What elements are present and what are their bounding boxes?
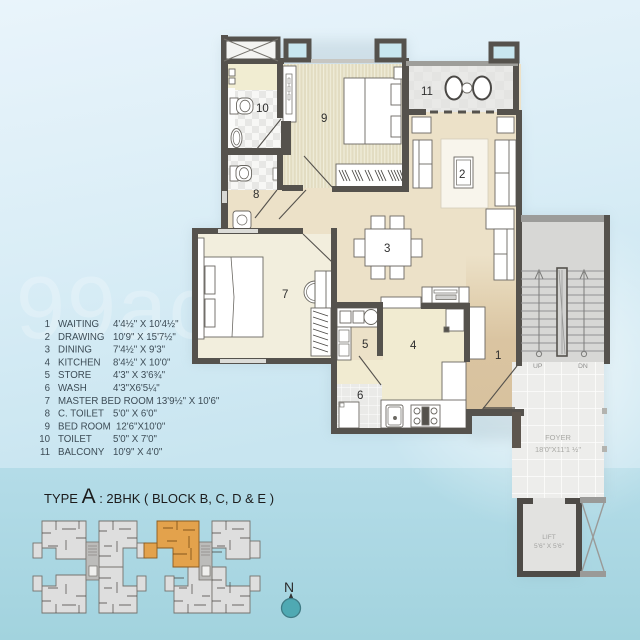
svg-text:1: 1: [495, 350, 501, 362]
svg-text:DRAWING: DRAWING: [58, 332, 104, 343]
svg-text:3: 3: [45, 345, 50, 356]
svg-text:MASTER BED ROOM 13'9½" X 10'6": MASTER BED ROOM 13'9½" X 10'6": [58, 396, 220, 407]
svg-text:12'6"X10'0": 12'6"X10'0": [116, 421, 166, 432]
svg-text:7'4½" X 9'3": 7'4½" X 9'3": [113, 345, 166, 356]
svg-text:7: 7: [282, 289, 288, 301]
svg-text:6: 6: [357, 390, 363, 402]
svg-text:8: 8: [253, 189, 259, 201]
svg-text:5'0" X 7'0": 5'0" X 7'0": [113, 434, 158, 445]
svg-text:DN: DN: [578, 363, 588, 370]
svg-text:1: 1: [45, 319, 50, 330]
svg-text:WAITING: WAITING: [58, 319, 99, 330]
svg-text:5'6" X 5'6": 5'6" X 5'6": [534, 543, 565, 550]
svg-text:3: 3: [384, 243, 390, 255]
svg-text:10: 10: [39, 434, 50, 445]
svg-text:8'4½" X 10'0": 8'4½" X 10'0": [113, 357, 171, 368]
svg-text:TOILET: TOILET: [58, 434, 92, 445]
svg-text:8: 8: [45, 409, 50, 420]
svg-text:BALCONY: BALCONY: [58, 447, 105, 458]
svg-text:5'0" X 6'0": 5'0" X 6'0": [113, 409, 158, 420]
svg-text:9: 9: [45, 421, 50, 432]
svg-text:KITCHEN: KITCHEN: [58, 357, 101, 368]
svg-text:C. TOILET: C. TOILET: [58, 409, 104, 420]
svg-text:4: 4: [45, 357, 51, 368]
svg-text:5: 5: [45, 370, 50, 381]
svg-text:11: 11: [421, 86, 433, 98]
svg-text:9: 9: [321, 113, 327, 125]
svg-text:LIFT: LIFT: [542, 534, 556, 541]
svg-text:4'4½" X 10'4½": 4'4½" X 10'4½": [113, 319, 179, 330]
svg-text:BED ROOM: BED ROOM: [58, 421, 111, 432]
svg-text:UP: UP: [533, 363, 543, 370]
svg-text:7: 7: [45, 396, 50, 407]
svg-text:4'3" X 3'6¾": 4'3" X 3'6¾": [113, 370, 166, 381]
svg-text:11: 11: [40, 447, 50, 458]
svg-text:10'9" X 4'0": 10'9" X 4'0": [113, 447, 163, 458]
svg-text:18'0"X11'1 ½": 18'0"X11'1 ½": [535, 445, 581, 454]
svg-text:4: 4: [410, 340, 417, 352]
svg-text:5: 5: [362, 339, 368, 351]
svg-text:10'9" X 15'7½": 10'9" X 15'7½": [113, 332, 176, 343]
svg-text:2: 2: [459, 169, 465, 181]
svg-text:N: N: [284, 579, 294, 595]
svg-text:6: 6: [45, 383, 50, 394]
svg-text:10: 10: [256, 103, 269, 115]
svg-text:2: 2: [45, 332, 50, 343]
svg-text:4'3"X6'5¼": 4'3"X6'5¼": [113, 383, 160, 394]
svg-text:WASH: WASH: [58, 383, 87, 394]
svg-text:FOYER: FOYER: [545, 433, 571, 442]
svg-text:STORE: STORE: [58, 370, 92, 381]
svg-text:DINING: DINING: [58, 345, 92, 356]
